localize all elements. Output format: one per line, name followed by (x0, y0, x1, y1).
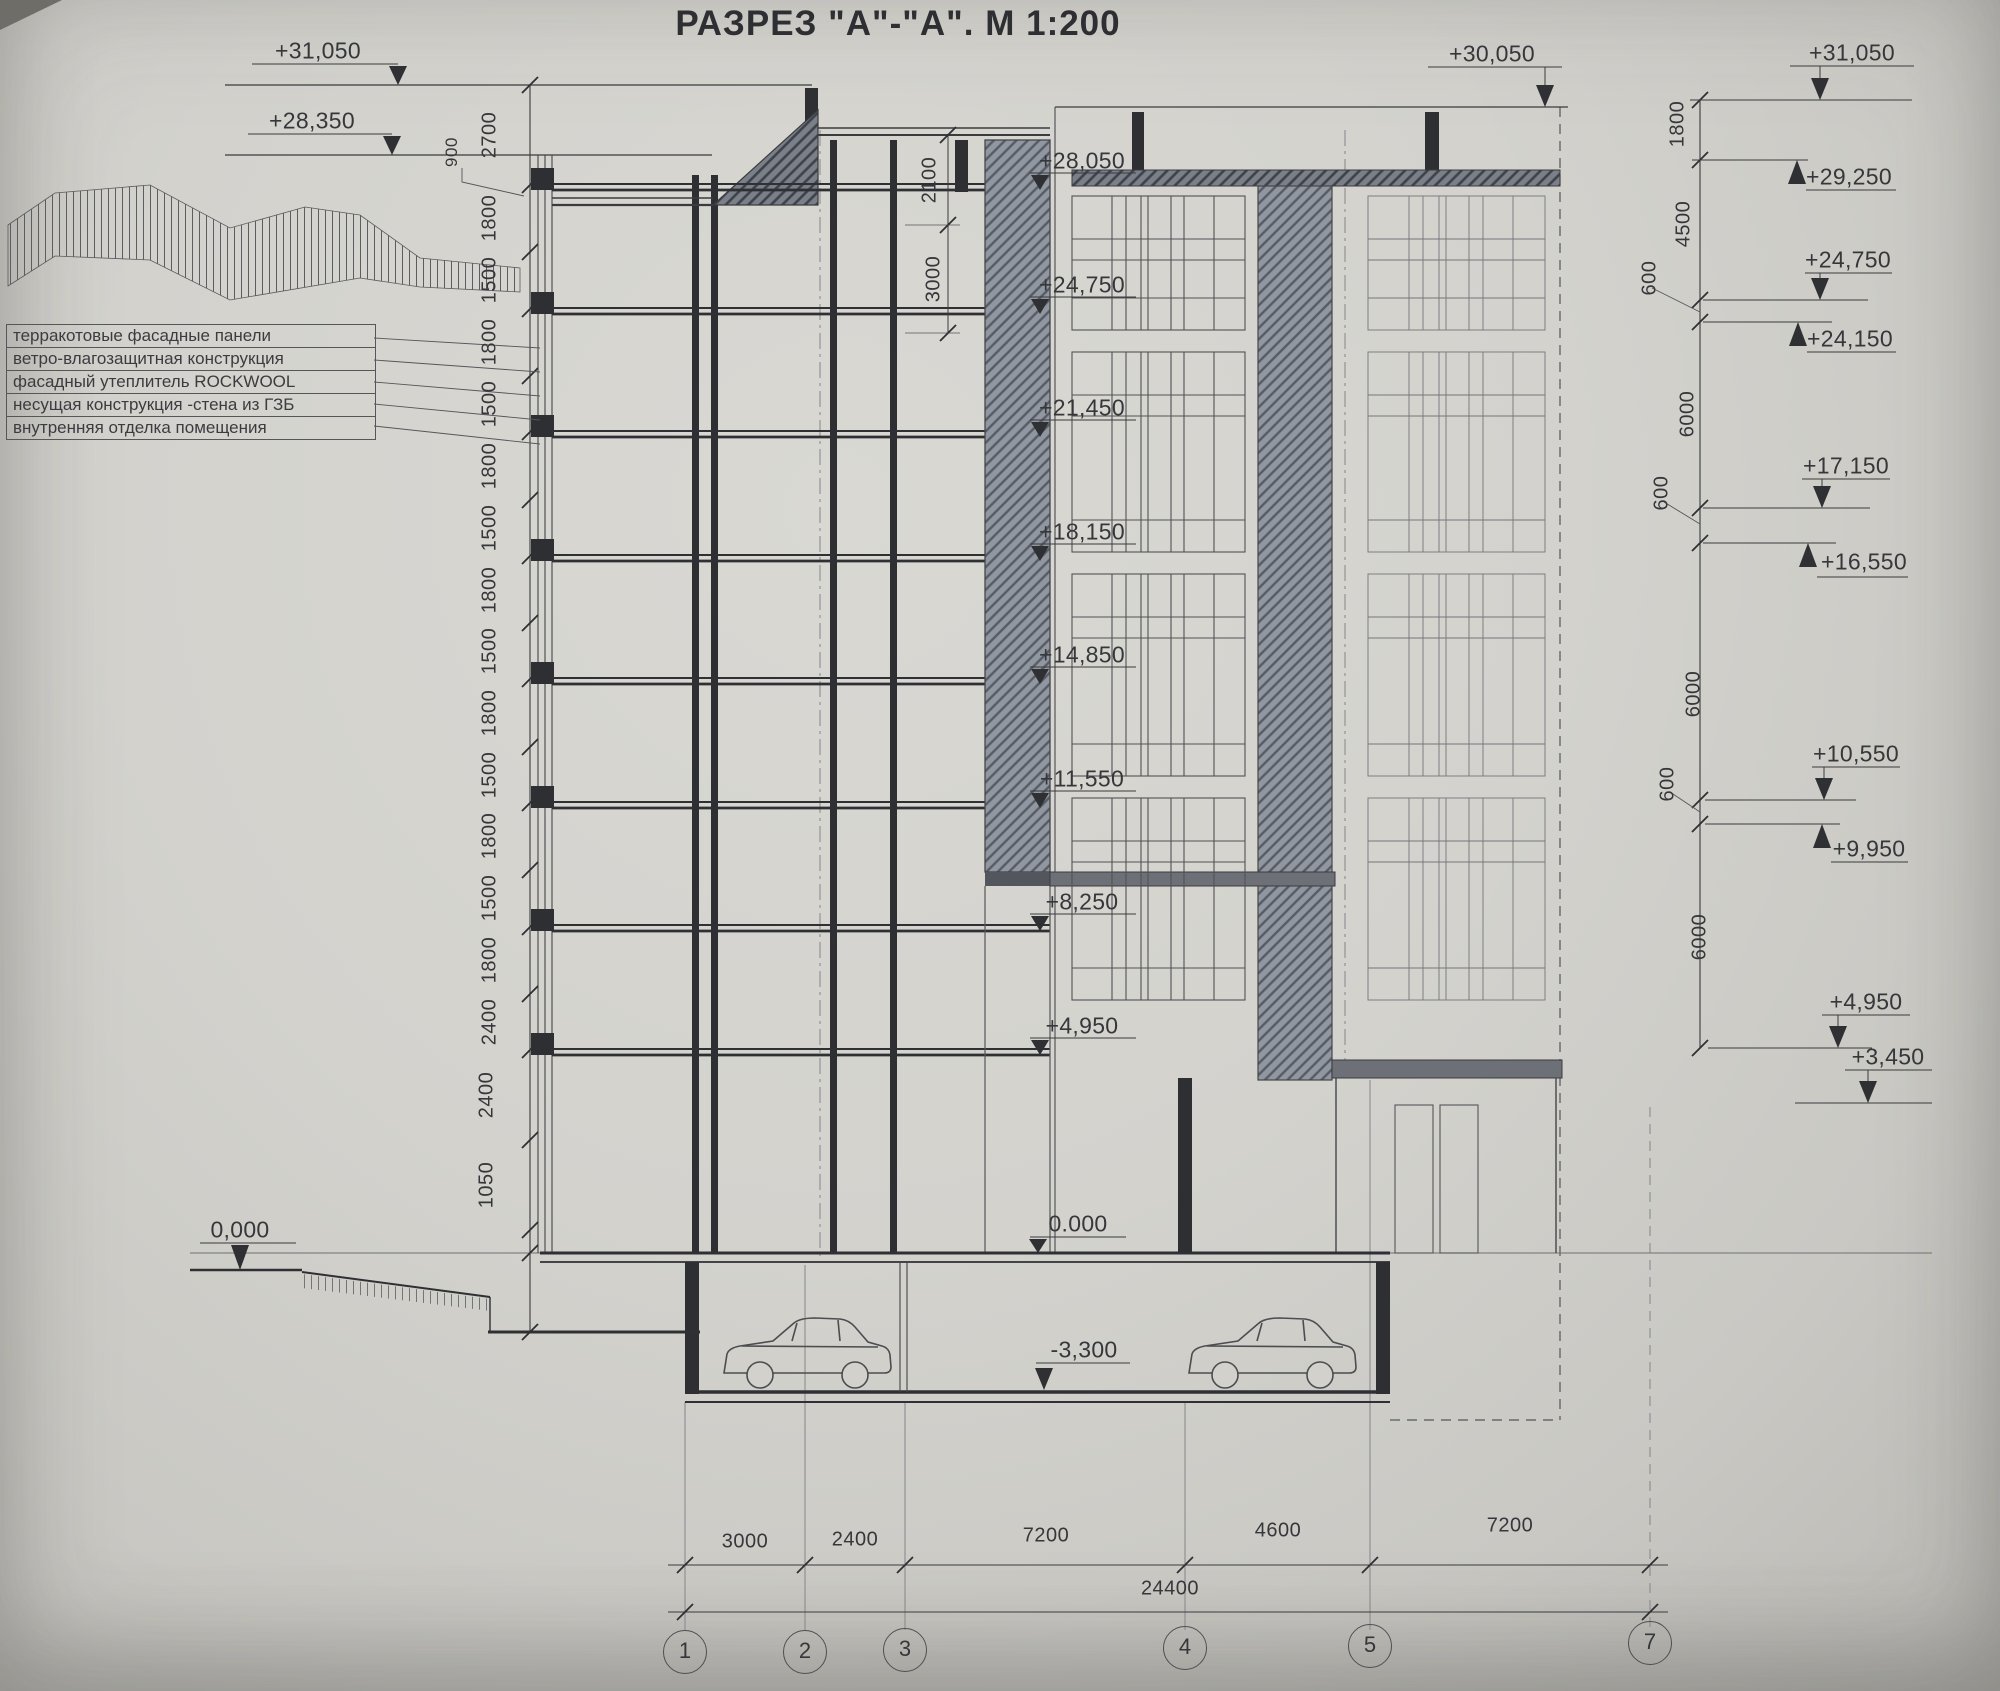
elevation-label: +28,050 (1039, 148, 1125, 175)
elevation-label: +30,050 (1449, 41, 1535, 68)
dim-label: 2700 (479, 112, 502, 159)
level-lines (190, 85, 1932, 1253)
ramp (190, 1270, 700, 1332)
dim-label: 4600 (1255, 1520, 1302, 1543)
elevation-label: +21,450 (1039, 395, 1125, 422)
dim-label: 1800 (479, 813, 502, 860)
legend-row: несущая конструкция -стена из ГЗБ (7, 394, 375, 417)
elevation-label: +8,250 (1046, 889, 1119, 916)
elevation-label: +3,450 (1852, 1044, 1925, 1071)
legend-row: ветро-влагозащитная конструкция (7, 348, 375, 371)
elevation-label: +24,750 (1805, 247, 1891, 274)
dim-label: 1800 (479, 443, 502, 490)
window-grid-b (1368, 196, 1545, 1000)
dim-label: 1500 (479, 257, 502, 304)
dim-label: 4500 (1673, 201, 1696, 248)
dim-label: 7200 (1487, 1515, 1534, 1538)
dim-label: 600 (1657, 767, 1680, 802)
grid-bubble: 3 (883, 1628, 927, 1672)
car-2 (1189, 1318, 1356, 1388)
elevation-label: +14,850 (1039, 642, 1125, 669)
dim-label: 2400 (479, 999, 502, 1046)
dim-label: 2100 (919, 157, 942, 204)
elevation-label: 0.000 (1048, 1211, 1107, 1238)
dim-label: 1500 (479, 628, 502, 675)
dim-label: 1500 (479, 381, 502, 428)
legend-row: внутренняя отделка помещения (7, 417, 375, 440)
elevation-label: +31,050 (1809, 40, 1895, 67)
grid-bubble: 7 (1628, 1621, 1672, 1665)
elevation-label: +29,250 (1806, 164, 1892, 191)
dim-label: 600 (1639, 261, 1662, 296)
dim-label: 1800 (479, 690, 502, 737)
dim-label: 6000 (1677, 391, 1700, 438)
left-wall (531, 155, 554, 1253)
dim-label: 1500 (479, 875, 502, 922)
elevation-label: -3,300 (1050, 1337, 1117, 1364)
dim-label: 900 (442, 137, 462, 167)
grid-bubble: 5 (1348, 1624, 1392, 1668)
elevation-label: +4,950 (1830, 989, 1903, 1016)
dim-label: 1050 (476, 1162, 499, 1209)
elevation-label: +11,550 (1040, 766, 1124, 793)
legend-row: фасадный утеплитель ROCKWOOL (7, 371, 375, 394)
grid-bubble: 2 (783, 1630, 827, 1674)
dim-label: 2400 (832, 1529, 879, 1552)
dim-label: 1500 (479, 752, 502, 799)
dim-label: 6000 (1683, 671, 1706, 718)
car-1 (724, 1318, 891, 1388)
elevation-label: +10,550 (1813, 741, 1899, 768)
grid-bubble: 4 (1163, 1626, 1207, 1670)
terrain-profile (8, 185, 520, 300)
elevation-label: +17,150 (1803, 453, 1889, 480)
dim-label: 6000 (1689, 914, 1712, 961)
elevation-part (1050, 170, 1562, 1253)
elevation-label: +4,950 (1046, 1013, 1119, 1040)
elevation-label: +24,150 (1807, 326, 1893, 353)
elevation-label: +18,150 (1039, 519, 1125, 546)
dim-label: 24400 (1141, 1578, 1199, 1601)
floor-slabs (552, 184, 1050, 1055)
elevation-label: +28,350 (269, 108, 355, 135)
elevation-label: +31,050 (275, 38, 361, 65)
dim-label: 1800 (479, 195, 502, 242)
dim-label: 600 (1651, 476, 1674, 511)
dim-label: 7200 (1023, 1525, 1070, 1548)
dim-label: 1800 (1667, 101, 1690, 148)
blueprint-sheet: РАЗРЕЗ "А"-"А". М 1:200 терракотовые фас… (0, 0, 2000, 1691)
elevation-label: +24,750 (1039, 272, 1125, 299)
dim-label: 1500 (479, 505, 502, 552)
dim-label: 3000 (923, 256, 946, 303)
garage (540, 1253, 1390, 1402)
dim-label: 1800 (479, 937, 502, 984)
elevation-label: 0,000 (210, 1217, 269, 1244)
grid-bubble: 1 (663, 1630, 707, 1674)
section-linework (0, 0, 2000, 1691)
dim-label: 1800 (479, 319, 502, 366)
elevation-label: +16,550 (1821, 549, 1907, 576)
dim-label: 1800 (479, 567, 502, 614)
photo-corner-shadow (0, 0, 62, 30)
dim-label: 2400 (476, 1072, 499, 1119)
drawing-title: РАЗРЕЗ "А"-"А". М 1:200 (675, 4, 1120, 44)
legend-leaders (374, 338, 540, 444)
wall-legend: терракотовые фасадные панели ветро-влаго… (6, 324, 376, 440)
elevation-label: +9,950 (1833, 836, 1906, 863)
legend-row: терракотовые фасадные панели (7, 325, 375, 348)
dim-label: 3000 (722, 1531, 769, 1554)
